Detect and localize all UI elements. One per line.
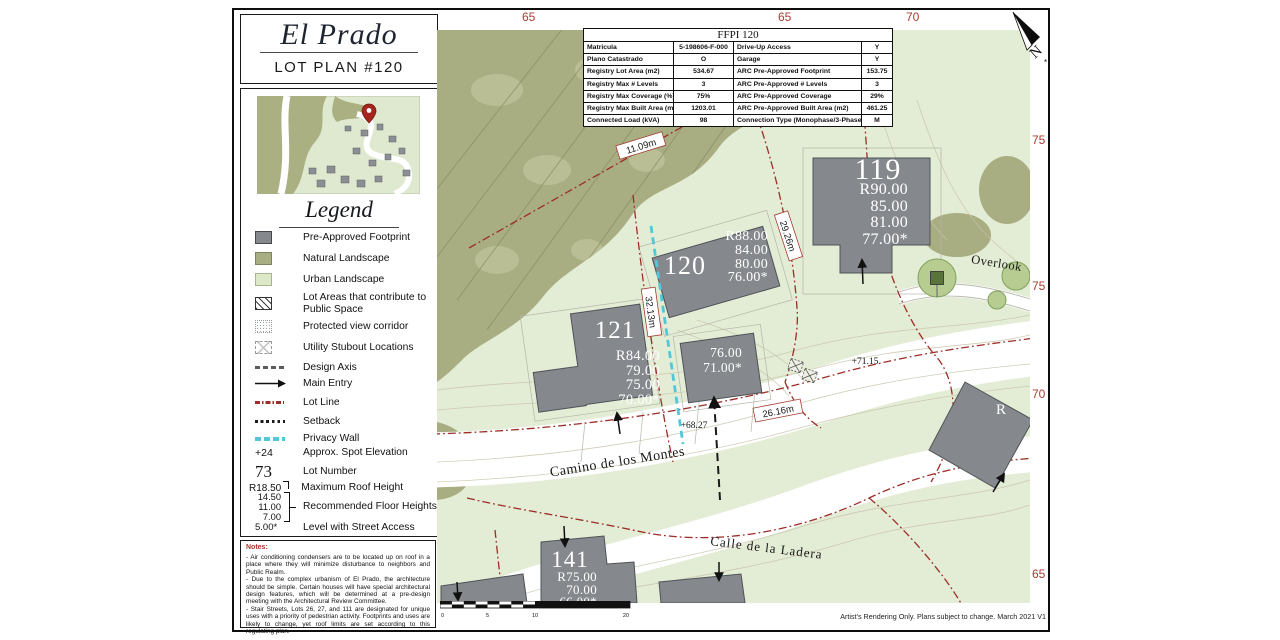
overlook-label: Overlook: [970, 252, 1023, 274]
entry-arrow-141: [564, 526, 565, 546]
legend-item-public-space: Lot Areas that contribute to Public Spac…: [255, 292, 430, 315]
legend-item-natural: Natural Landscape: [255, 252, 389, 265]
scale-tick: 10: [532, 613, 538, 619]
table-cell: 1203.01: [674, 103, 734, 114]
table-cell: Drive-Up Access: [734, 42, 862, 53]
legend-label: Level with Street Access: [303, 522, 415, 534]
legend-item-street-access: 5.00* Level with Street Access: [255, 522, 415, 534]
view-corridor-swatch-icon: [255, 320, 272, 333]
legend-label: Privacy Wall: [303, 433, 359, 445]
legend-item-lot-line: Lot Line: [255, 397, 340, 409]
note-paragraph: - Air conditioning condensers are to be …: [246, 554, 430, 576]
table-cell: Registry Lot Area (m2): [584, 66, 674, 77]
lot-heights-119: R90.00 85.00 81.00 77.00*: [820, 182, 908, 248]
scale-tick: 5: [486, 613, 489, 619]
floor-height-value: 11.00: [247, 502, 281, 512]
title-block: El Prado LOT PLAN #120: [240, 14, 438, 84]
height-value: R84.00: [580, 349, 660, 364]
height-value: 76.00*: [690, 271, 768, 285]
legend-item-floor-heights: 14.50 11.00 7.00 Recommended Floor Heigh…: [247, 492, 437, 522]
legend-label: Natural Landscape: [303, 253, 389, 265]
floor-heights-values: 14.50 11.00 7.00: [247, 492, 281, 522]
scale-bar: 0 5 10 20: [440, 601, 632, 620]
design-axis-line-icon: [255, 366, 285, 369]
main-entry-arrow-icon: [255, 378, 286, 389]
public-space-hatch-swatch-icon: [255, 297, 272, 310]
table-row: Registry Max Built Area (m2) 1203.01 ARC…: [584, 103, 892, 115]
compass-north-icon: N *: [1008, 9, 1054, 67]
legend-label: Utility Stubout Locations: [303, 342, 413, 354]
lot-heights-partial-right: R: [996, 402, 1026, 419]
legend-item-main-entry: Main Entry: [255, 378, 352, 390]
street-access-symbol: 5.00*: [255, 522, 277, 533]
footprint-swatch-icon: [255, 231, 272, 244]
lot-number-121: 121: [585, 317, 645, 345]
table-cell: Matricula: [584, 42, 674, 53]
height-value: 85.00: [820, 199, 908, 216]
table-cell: Registry Max Coverage (%): [584, 91, 674, 102]
legend-item-design-axis: Design Axis: [255, 362, 357, 374]
utility-stubout-swatch-icon: [255, 341, 272, 354]
height-value: R90.00: [820, 182, 908, 199]
legend-item-lot-number: 73 Lot Number: [255, 462, 357, 482]
spot-elevation: +71.15: [852, 357, 879, 367]
setback-line-icon: [255, 420, 285, 423]
table-cell: 153.75: [862, 66, 892, 77]
lot-heights-120-sub: 76.00 71.00*: [680, 346, 742, 375]
height-value: R88.00: [690, 230, 768, 244]
table-cell: 3: [674, 79, 734, 90]
spot-elevation: +68.27: [681, 421, 708, 431]
overlook-path: [899, 290, 1030, 306]
contour-label: 65: [522, 10, 535, 24]
table-cell: 534.67: [674, 66, 734, 77]
legend-label: Main Entry: [303, 378, 352, 390]
legend-label: Urban Landscape: [303, 274, 384, 286]
legend-item-setback: Setback: [255, 416, 340, 428]
table-cell: Y: [862, 54, 892, 65]
height-value: 75.00: [580, 378, 660, 393]
table-cell: Garage: [734, 54, 862, 65]
table-cell: ARC Pre-Approved Footprint: [734, 66, 862, 77]
table-header: FFPI 120: [584, 29, 892, 42]
table-cell: 75%: [674, 91, 734, 102]
legend-label: Lot Number: [303, 466, 357, 478]
scale-tick: 20: [623, 613, 629, 619]
legend-divider: [279, 227, 399, 228]
lot-info-table: FFPI 120 Matricula 5-198606-F-000 Drive-…: [583, 28, 893, 127]
compass-star: *: [1044, 58, 1047, 67]
legend-item-view-corridor: Protected view corridor: [255, 320, 408, 333]
table-cell: 461.25: [862, 103, 892, 114]
street-name: Calle de la Ladera: [710, 533, 824, 562]
footprint-partial-center: [659, 574, 745, 603]
height-value: 84.00: [690, 244, 768, 258]
legend-item-privacy-wall: Privacy Wall: [255, 433, 359, 445]
lot-line-icon: [255, 401, 285, 404]
table-cell: Registry Max # Levels: [584, 79, 674, 90]
table-cell: ARC Pre-Approved Built Area (m2): [734, 103, 862, 114]
notes-panel: Notes: - Air conditioning condensers are…: [240, 540, 436, 628]
table-cell: 3: [862, 79, 892, 90]
table-cell: Plano Catastrado: [584, 54, 674, 65]
legend-item-urban: Urban Landscape: [255, 273, 384, 286]
entry-arrow-left: [457, 582, 458, 600]
footprint-partial-left: [441, 574, 527, 603]
table-row: Matricula 5-198606-F-000 Drive-Up Access…: [584, 42, 892, 54]
table-row: Connected Load (kVA) 98 Connection Type …: [584, 115, 892, 126]
height-value: 79.00: [580, 364, 660, 379]
contour-label: 70: [906, 10, 919, 24]
table-cell: M: [862, 115, 892, 126]
scale-bar-cells: [440, 601, 630, 608]
table-cell: 98: [674, 115, 734, 126]
title-divider: [260, 52, 418, 53]
table-cell: ARC Pre-Approved Coverage: [734, 91, 862, 102]
table-cell: Y: [862, 42, 892, 53]
spot-elevation-symbol: +24: [255, 447, 273, 459]
contour-label: 65: [1032, 567, 1045, 581]
overlook-deck: [931, 272, 944, 285]
floor-height-value: 14.50: [247, 492, 281, 502]
contour-label: 70: [1032, 387, 1045, 401]
height-value: 81.00: [820, 215, 908, 232]
height-value: 80.00: [690, 258, 768, 272]
measurement-label: 29.26m: [774, 211, 802, 261]
contour-label: 75: [1032, 133, 1045, 147]
note-paragraph: - Stair Streets, Lots 26, 27, and 111 ar…: [246, 606, 430, 636]
height-value: 76.00: [680, 346, 742, 361]
scale-bar-labels: 0 5 10 20: [441, 613, 629, 619]
project-title: El Prado: [241, 18, 437, 52]
legend-item-spot-elevation: +24 Approx. Spot Elevation: [255, 447, 408, 459]
lot-heights-121: R84.00 79.00 75.00 70.00*: [580, 349, 660, 407]
height-value: 70.00*: [580, 393, 660, 408]
lot-plan-sheet: El Prado LOT PLAN #120: [0, 0, 1280, 640]
lot-heights-120: R88.00 84.00 80.00 76.00*: [690, 230, 768, 285]
legend-label: Design Axis: [303, 362, 357, 374]
tree-icon: [988, 291, 1006, 309]
legend-item-utility-stubout: Utility Stubout Locations: [255, 341, 413, 354]
note-paragraph: - Due to the complex urbanism of El Prad…: [246, 576, 430, 606]
height-value: 71.00*: [680, 361, 742, 376]
table-cell: Registry Max Built Area (m2): [584, 103, 674, 114]
entry-arrow-119: [862, 260, 863, 284]
table-cell: Connected Load (kVA): [584, 115, 674, 126]
natural-landscape-swatch-icon: [255, 252, 272, 265]
legend-label: Recommended Floor Heights: [303, 501, 437, 513]
table-cell: Connection Type (Monophase/3-Phase): [734, 115, 862, 126]
legend-label: Pre-Approved Footprint: [303, 232, 410, 244]
table-row: Registry Max # Levels 3 ARC Pre-Approved…: [584, 79, 892, 91]
scale-tick: 0: [441, 613, 444, 619]
legend-item-footprint: Pre-Approved Footprint: [255, 231, 410, 244]
table-cell: ARC Pre-Approved # Levels: [734, 79, 862, 90]
lot-heights-141: R75.00 70.00 66.00*: [525, 571, 597, 603]
privacy-wall-line-icon: [255, 437, 285, 441]
legend-label: Protected view corridor: [303, 321, 408, 333]
roof-height-tick: [283, 481, 289, 489]
legend-label: Lot Line: [303, 397, 340, 409]
contour-label: 75: [1032, 279, 1045, 293]
floor-height-value: 7.00: [247, 512, 281, 522]
table-cell: 29%: [862, 91, 892, 102]
urban-landscape-swatch-icon: [255, 273, 272, 286]
contour-label: 65: [778, 10, 791, 24]
table-cell: 5-198606-F-000: [674, 42, 734, 53]
legend-label: Approx. Spot Elevation: [303, 447, 408, 459]
table-cell: O: [674, 54, 734, 65]
legend-label: Lot Areas that contribute to Public Spac…: [303, 292, 430, 315]
floor-heights-dash: [290, 507, 296, 508]
notes-heading: Notes:: [246, 544, 430, 551]
locator-minimap: [257, 96, 420, 194]
legend-heading: Legend: [241, 197, 437, 223]
legend-label: Setback: [303, 416, 340, 428]
legend-panel: Legend Pre-Approved Footprint Natural La…: [240, 88, 438, 537]
lot-number-symbol: 73: [255, 462, 272, 482]
table-row: Registry Max Coverage (%) 75% ARC Pre-Ap…: [584, 91, 892, 103]
disclaimer-text: Artist's Rendering Only. Plans subject t…: [820, 612, 1046, 621]
page-title: LOT PLAN #120: [241, 59, 437, 76]
table-row: Registry Lot Area (m2) 534.67 ARC Pre-Ap…: [584, 66, 892, 78]
height-value: 77.00*: [820, 232, 908, 249]
table-row: Plano Catastrado O Garage Y: [584, 54, 892, 66]
